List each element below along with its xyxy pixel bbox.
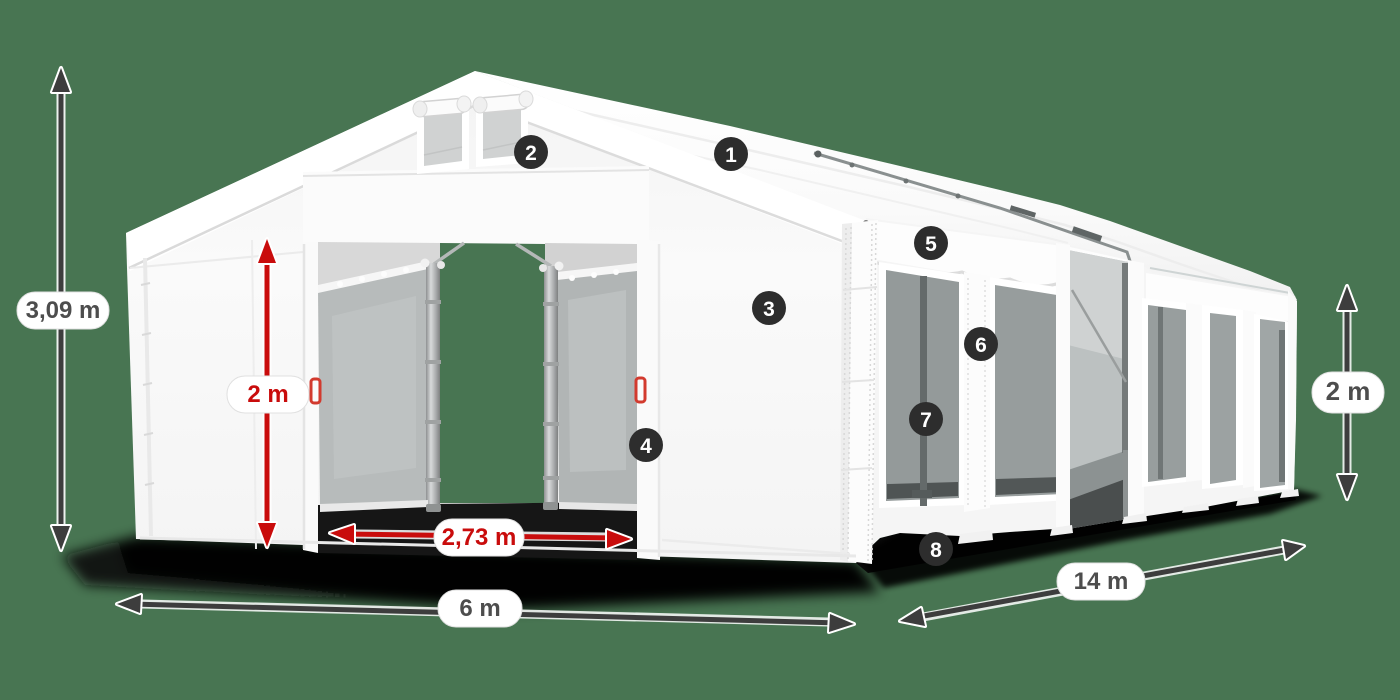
svg-text:1: 1 (725, 144, 737, 167)
svg-text:2: 2 (525, 142, 537, 165)
svg-text:6 m: 6 m (459, 595, 500, 622)
svg-text:8: 8 (930, 539, 942, 562)
svg-text:2 m: 2 m (247, 381, 288, 408)
svg-text:3,09 m: 3,09 m (26, 297, 101, 324)
svg-text:2 m: 2 m (1326, 376, 1371, 406)
svg-text:7: 7 (920, 409, 932, 432)
svg-text:2,73 m: 2,73 m (442, 524, 517, 551)
svg-text:3: 3 (763, 298, 775, 321)
svg-text:4: 4 (640, 435, 652, 458)
svg-text:5: 5 (925, 233, 937, 256)
svg-text:14 m: 14 m (1074, 568, 1129, 595)
svg-text:6: 6 (975, 334, 987, 357)
